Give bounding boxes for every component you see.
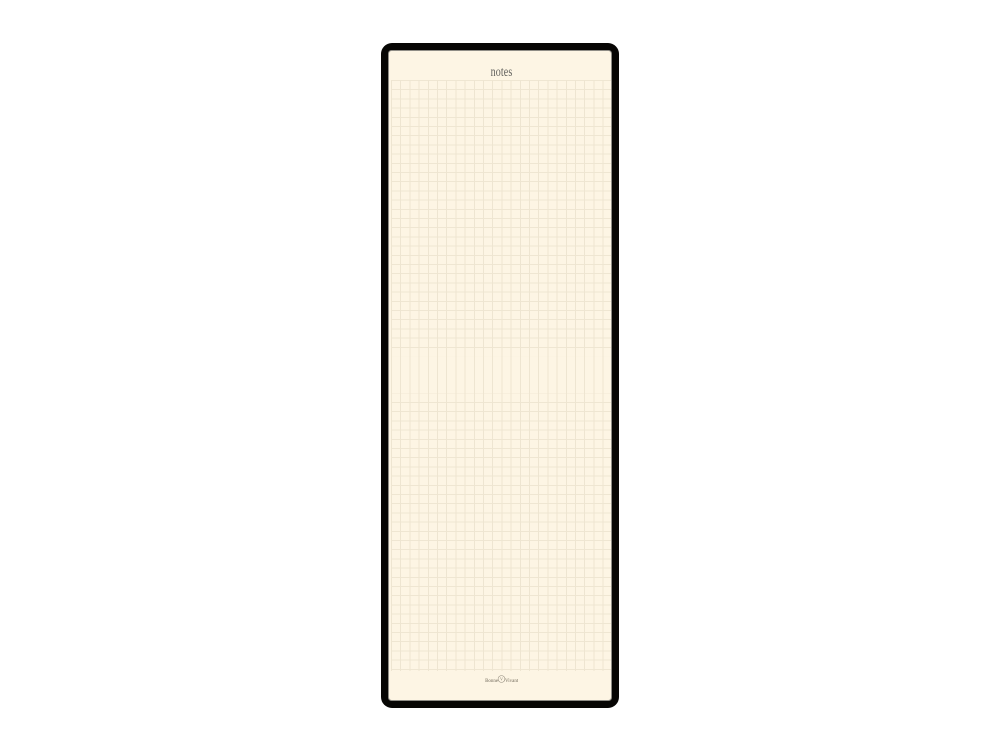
svg-text:Vivant: Vivant	[505, 679, 518, 684]
svg-text:Bonne: Bonne	[485, 679, 499, 684]
svg-text:V: V	[500, 676, 503, 681]
